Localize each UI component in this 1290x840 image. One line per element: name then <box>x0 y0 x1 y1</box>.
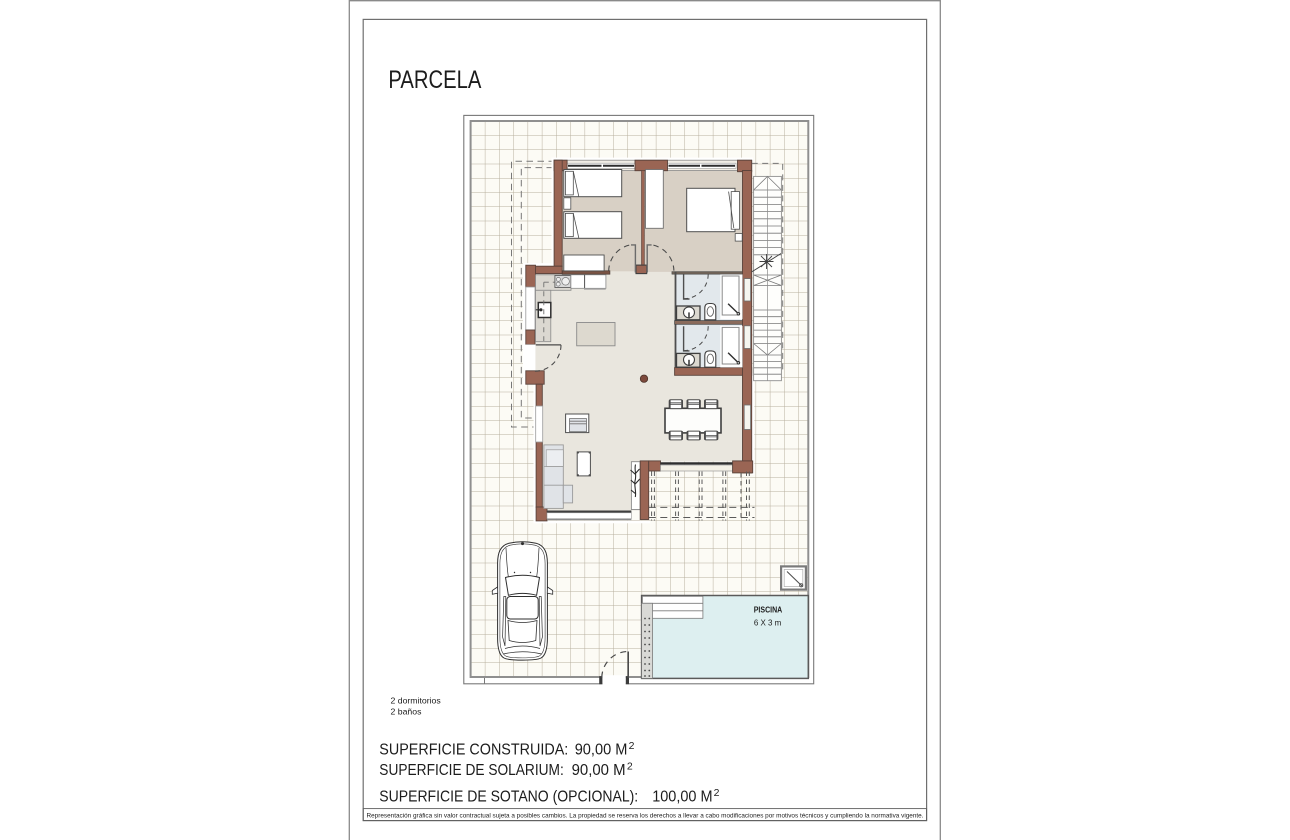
svg-text:Representación gráfica sin val: Representación gráfica sin valor contrac… <box>367 812 924 819</box>
svg-text:2: 2 <box>627 760 633 772</box>
svg-text:SUPERFICIE CONSTRUIDA:: SUPERFICIE CONSTRUIDA: <box>379 742 568 759</box>
svg-text:90,00 M: 90,00 M <box>572 762 626 779</box>
svg-text:2 dormitorios: 2 dormitorios <box>391 695 442 705</box>
svg-text:2 baños: 2 baños <box>391 706 423 716</box>
svg-text:2: 2 <box>629 740 635 752</box>
svg-text:PARCELA: PARCELA <box>388 66 481 94</box>
svg-text:100,00 M: 100,00 M <box>652 788 712 805</box>
svg-text:6 X 3 m: 6 X 3 m <box>754 618 782 628</box>
svg-text:PISCINA: PISCINA <box>754 605 783 615</box>
svg-text:2: 2 <box>714 787 720 799</box>
svg-text:90,00 M: 90,00 M <box>575 742 628 759</box>
svg-text:SUPERFICIE DE SOLARIUM:: SUPERFICIE DE SOLARIUM: <box>379 762 564 779</box>
svg-text:SUPERFICIE DE SOTANO (OPCIONAL: SUPERFICIE DE SOTANO (OPCIONAL): <box>379 788 638 805</box>
